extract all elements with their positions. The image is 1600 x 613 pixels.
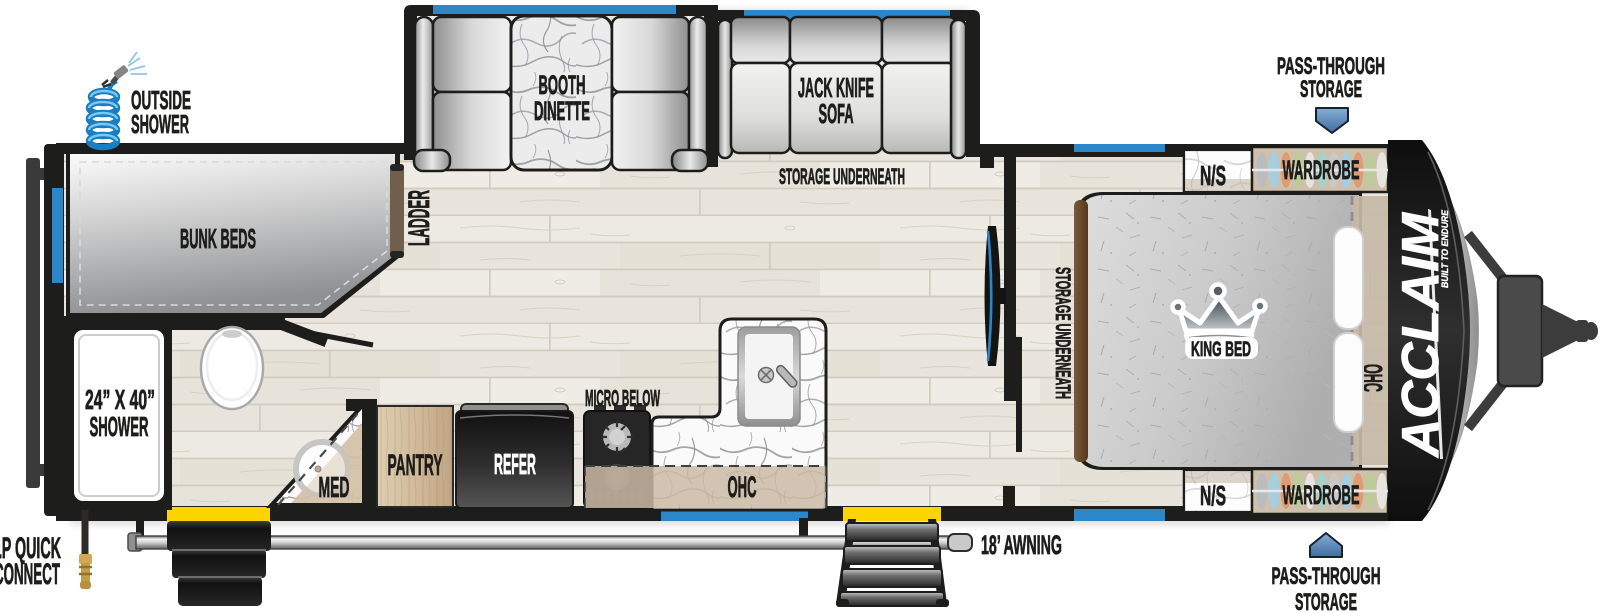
svg-text:CONNECT: CONNECT xyxy=(0,558,60,591)
svg-text:WARDROBE: WARDROBE xyxy=(1283,155,1360,185)
svg-text:SHOWER: SHOWER xyxy=(131,109,189,139)
svg-text:N/S: N/S xyxy=(1200,480,1226,511)
svg-text:STORAGE: STORAGE xyxy=(1295,589,1357,613)
svg-text:STORAGE UNDERNEATH: STORAGE UNDERNEATH xyxy=(1051,267,1074,399)
svg-text:OHC: OHC xyxy=(728,471,757,504)
svg-text:WARDROBE: WARDROBE xyxy=(1283,480,1360,510)
svg-text:SHOWER: SHOWER xyxy=(90,411,149,442)
svg-text:MED: MED xyxy=(319,472,350,504)
svg-text:BUNK BEDS: BUNK BEDS xyxy=(180,223,256,254)
svg-text:REFER: REFER xyxy=(494,449,536,481)
svg-text:SOFA: SOFA xyxy=(819,98,854,129)
svg-text:PASS-THROUGH: PASS-THROUGH xyxy=(1272,563,1381,590)
svg-text:BUILT TO ENDURE: BUILT TO ENDURE xyxy=(1440,209,1450,288)
svg-text:LADDER: LADDER xyxy=(403,190,436,246)
svg-text:PANTRY: PANTRY xyxy=(388,449,443,482)
svg-text:18’ AWNING: 18’ AWNING xyxy=(981,530,1062,560)
svg-text:KING BED: KING BED xyxy=(1191,338,1251,361)
svg-text:STORAGE: STORAGE xyxy=(1300,76,1362,103)
svg-text:DINETTE: DINETTE xyxy=(534,96,590,126)
svg-text:MICRO BELOW: MICRO BELOW xyxy=(585,385,660,411)
svg-text:STORAGE UNDERNEATH: STORAGE UNDERNEATH xyxy=(779,164,905,189)
svg-text:N/S: N/S xyxy=(1200,160,1226,191)
